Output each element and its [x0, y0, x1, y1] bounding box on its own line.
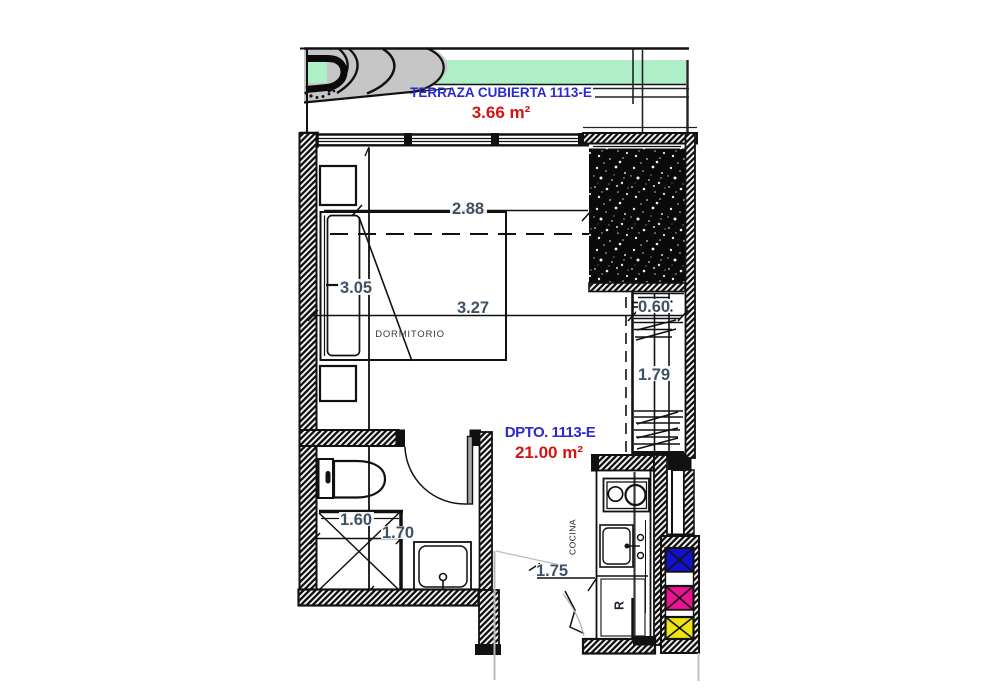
svg-text:3.27: 3.27	[457, 299, 489, 317]
svg-text:DPTO. 1113-E: DPTO. 1113-E	[505, 424, 596, 441]
svg-text:COCINA: COCINA	[568, 519, 578, 555]
svg-text:1.70: 1.70	[382, 524, 414, 542]
svg-text:0.60: 0.60	[638, 298, 670, 316]
svg-text:3.05: 3.05	[340, 279, 372, 297]
svg-text:1.79: 1.79	[638, 366, 670, 384]
svg-text:3.66 m²: 3.66 m²	[472, 103, 531, 122]
svg-text:21.00 m²: 21.00 m²	[515, 443, 583, 462]
svg-text:DORMITORIO: DORMITORIO	[375, 329, 445, 340]
svg-text:1.60: 1.60	[340, 511, 372, 529]
svg-text:R: R	[613, 601, 627, 610]
svg-text:2.88: 2.88	[452, 200, 484, 218]
svg-text:TERRAZA CUBIERTA 1113-E: TERRAZA CUBIERTA 1113-E	[410, 85, 592, 100]
